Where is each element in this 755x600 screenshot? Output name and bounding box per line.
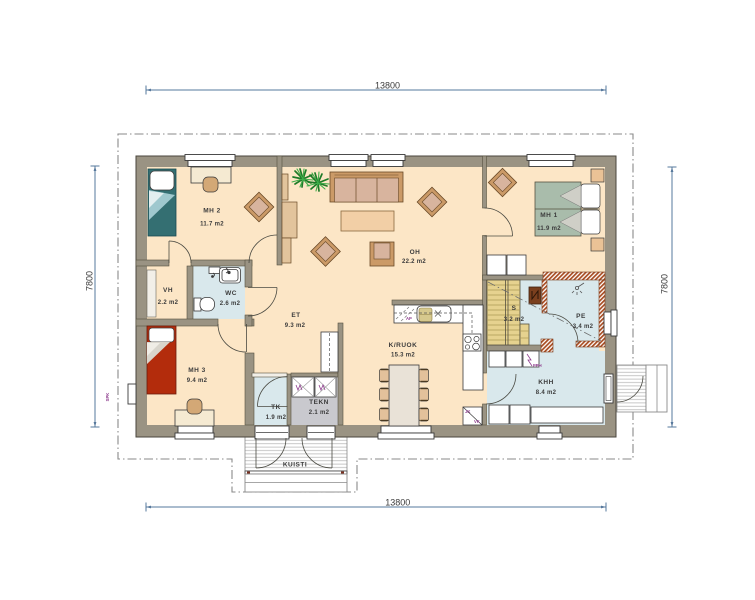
svg-text:3.4 m2: 3.4 m2 bbox=[573, 324, 594, 330]
svg-text:8.4 m2: 8.4 m2 bbox=[536, 390, 557, 396]
svg-text:K/RUOK: K/RUOK bbox=[389, 342, 418, 349]
svg-text:TEKN: TEKN bbox=[309, 399, 329, 406]
svg-text:2.2 m2: 2.2 m2 bbox=[158, 300, 179, 306]
svg-text:22.2 m2: 22.2 m2 bbox=[402, 259, 426, 265]
svg-text:TK: TK bbox=[271, 404, 281, 411]
svg-text:S: S bbox=[512, 305, 517, 312]
svg-text:MH 3: MH 3 bbox=[188, 367, 206, 374]
svg-text:15.3 m2: 15.3 m2 bbox=[391, 353, 415, 359]
svg-text:1.9 m2: 1.9 m2 bbox=[266, 415, 287, 421]
svg-text:11.9 m2: 11.9 m2 bbox=[537, 226, 561, 232]
svg-text:MH 1: MH 1 bbox=[540, 212, 558, 219]
svg-text:13800: 13800 bbox=[385, 497, 410, 507]
svg-text:VH: VH bbox=[163, 287, 173, 294]
svg-text:7800: 7800 bbox=[85, 271, 95, 291]
svg-text:VK: VK bbox=[474, 419, 480, 424]
svg-text:7800: 7800 bbox=[660, 274, 670, 294]
svg-text:13800: 13800 bbox=[375, 80, 400, 90]
svg-text:3.2 m2: 3.2 m2 bbox=[504, 317, 525, 323]
svg-text:AP: AP bbox=[406, 316, 412, 321]
svg-text:9.3 m2: 9.3 m2 bbox=[285, 323, 306, 329]
svg-text:KUISTI: KUISTI bbox=[283, 462, 307, 469]
svg-text:11.7 m2: 11.7 m2 bbox=[200, 222, 224, 228]
svg-text:2.1 m2: 2.1 m2 bbox=[309, 410, 330, 416]
svg-text:JK: JK bbox=[465, 409, 470, 414]
svg-text:2.6 m2: 2.6 m2 bbox=[220, 301, 241, 307]
svg-text:WC: WC bbox=[225, 290, 237, 297]
svg-text:9.4 m2: 9.4 m2 bbox=[187, 378, 208, 384]
svg-text:SPK: SPK bbox=[105, 393, 110, 402]
svg-text:KHH: KHH bbox=[538, 379, 554, 386]
svg-text:PPH: PPH bbox=[533, 363, 542, 368]
svg-text:MH 2: MH 2 bbox=[203, 208, 221, 215]
svg-text:PE: PE bbox=[576, 313, 586, 320]
svg-text:ET: ET bbox=[291, 312, 300, 319]
svg-text:OH: OH bbox=[410, 249, 421, 256]
